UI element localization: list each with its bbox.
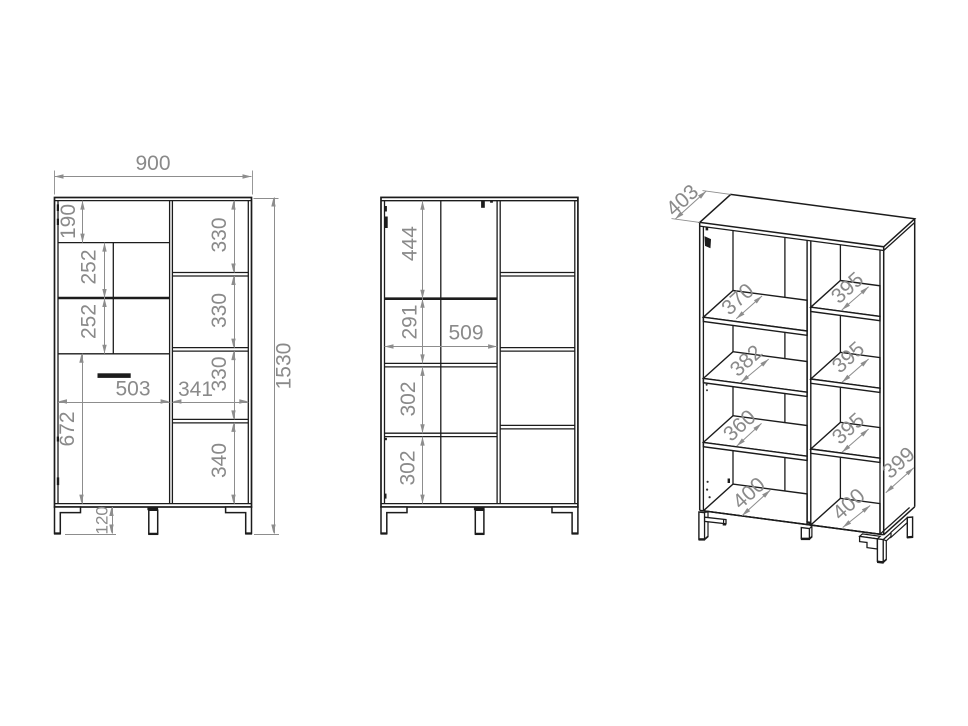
svg-text:291: 291 <box>398 304 421 339</box>
svg-text:302: 302 <box>397 450 420 485</box>
svg-text:340: 340 <box>208 443 231 478</box>
svg-text:900: 900 <box>135 152 170 175</box>
svg-text:190: 190 <box>57 204 80 239</box>
svg-text:252: 252 <box>78 304 101 339</box>
svg-text:509: 509 <box>448 321 483 344</box>
svg-text:120: 120 <box>92 506 111 534</box>
svg-text:1530: 1530 <box>273 343 296 390</box>
svg-text:503: 503 <box>115 377 150 400</box>
svg-text:302: 302 <box>397 381 420 416</box>
svg-text:444: 444 <box>398 226 421 261</box>
svg-text:330: 330 <box>208 217 231 252</box>
svg-text:403: 403 <box>662 180 703 221</box>
svg-text:330: 330 <box>208 293 231 328</box>
svg-text:672: 672 <box>56 411 79 446</box>
svg-text:330: 330 <box>208 356 231 391</box>
svg-text:252: 252 <box>78 249 101 284</box>
